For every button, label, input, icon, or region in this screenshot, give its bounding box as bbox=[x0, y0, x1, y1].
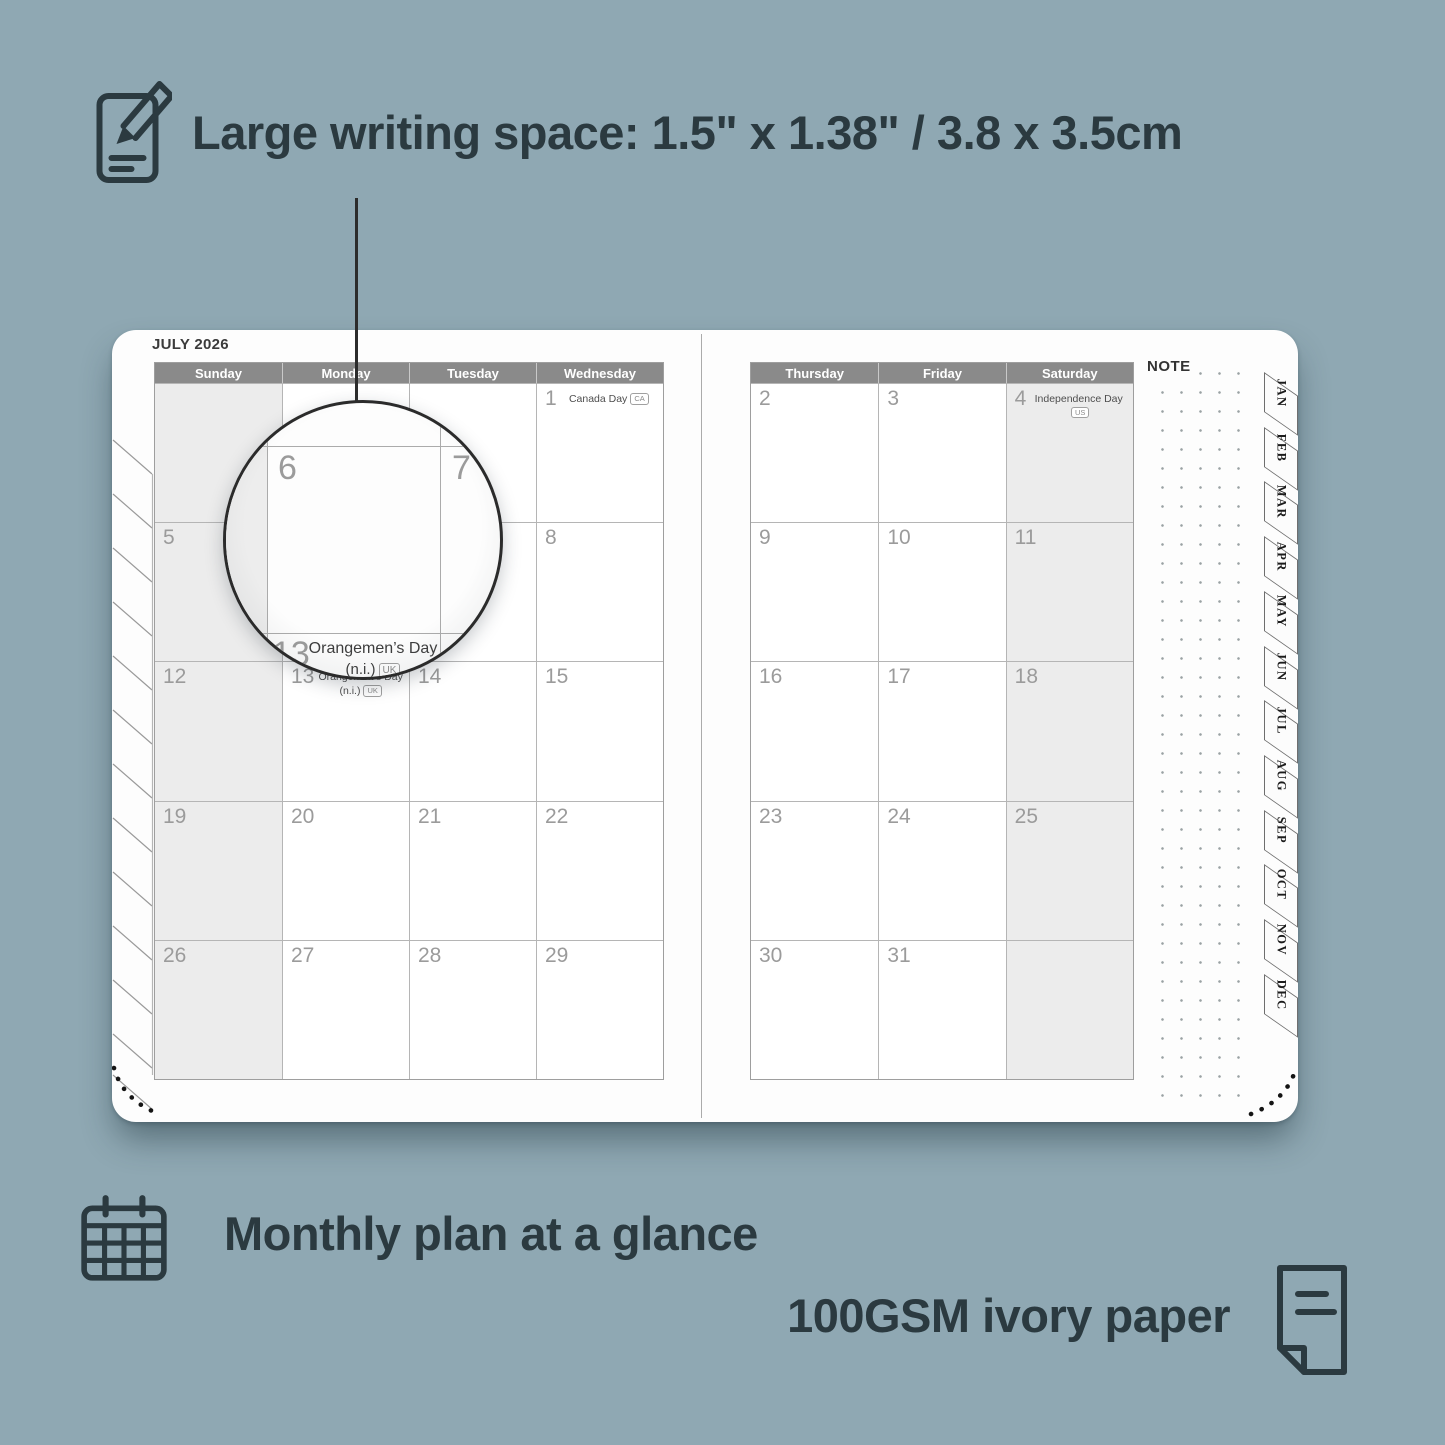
calendar-cell: 16 bbox=[751, 661, 878, 800]
day-number: 26 bbox=[160, 945, 186, 967]
day-number: 31 bbox=[884, 945, 910, 967]
month-tab-oct: OCT bbox=[1264, 864, 1298, 928]
day-header: Saturday bbox=[1006, 363, 1133, 383]
note-label: NOTE bbox=[1147, 358, 1196, 375]
lens-holiday-line1: Orangemen’s Day bbox=[298, 639, 448, 660]
day-number: 8 bbox=[542, 527, 557, 549]
lens-shaded-column bbox=[226, 403, 267, 677]
lens-holiday-label: Orangemen’s Day (n.i.)UK bbox=[298, 639, 448, 679]
day-number: 12 bbox=[160, 666, 186, 688]
calendar-cell: 2 bbox=[751, 383, 878, 522]
day-number: 22 bbox=[542, 806, 568, 828]
calendar-cell: 31 bbox=[878, 940, 1005, 1079]
month-tab-label: FEB bbox=[1265, 428, 1297, 466]
day-header: Friday bbox=[878, 363, 1005, 383]
month-title: JULY 2026 bbox=[152, 336, 229, 353]
lens-day-number: 6 bbox=[278, 449, 297, 488]
month-tab-label: NOV bbox=[1265, 921, 1297, 959]
calendar-icon bbox=[78, 1192, 170, 1284]
lens-grid-line bbox=[226, 633, 500, 634]
month-tabs: JANFEBMARAPRMAYJUNJULAUGSEPOCTNOVDEC bbox=[1264, 330, 1298, 1122]
page-spine bbox=[701, 334, 702, 1118]
month-tab-jun: JUN bbox=[1264, 646, 1298, 710]
calendar-cell: 13Orangemen’s Day(n.i.)UK bbox=[282, 661, 409, 800]
month-tab-label: MAY bbox=[1265, 592, 1297, 630]
holiday-badge: UK bbox=[363, 685, 381, 697]
day-number: 30 bbox=[756, 945, 782, 967]
calendar-cell: 20 bbox=[282, 801, 409, 940]
day-number: 9 bbox=[756, 527, 771, 549]
month-tab-label: AUG bbox=[1265, 757, 1297, 795]
month-tab-label: JUN bbox=[1265, 647, 1297, 685]
day-header: Tuesday bbox=[409, 363, 536, 383]
day-number: 16 bbox=[756, 666, 782, 688]
month-tab-label: SEP bbox=[1265, 811, 1297, 849]
calendar-cell: 29 bbox=[536, 940, 663, 1079]
calendar-cell: 24 bbox=[878, 801, 1005, 940]
note-pencil-icon bbox=[84, 76, 172, 184]
calendar-cell: 14 bbox=[409, 661, 536, 800]
day-number: 2 bbox=[756, 388, 771, 410]
holiday-label: Canada DayCA bbox=[560, 393, 658, 407]
calendar-cell: 19 bbox=[155, 801, 282, 940]
month-tab-may: MAY bbox=[1264, 591, 1298, 655]
calendar-cell: 23 bbox=[751, 801, 878, 940]
month-tab-jul: JUL bbox=[1264, 700, 1298, 764]
month-tab-apr: APR bbox=[1264, 536, 1298, 600]
holiday-label: Independence DayUS bbox=[1029, 393, 1128, 420]
lens-grid-line bbox=[226, 446, 500, 447]
calendar-cell: 27 bbox=[282, 940, 409, 1079]
day-number: 4 bbox=[1012, 388, 1027, 410]
month-tab-jan: JAN bbox=[1264, 372, 1298, 436]
calendar-cell: 11 bbox=[1006, 522, 1133, 661]
day-header: Wednesday bbox=[536, 363, 663, 383]
day-number: 20 bbox=[288, 806, 314, 828]
holiday-badge: CA bbox=[630, 393, 648, 405]
calendar-cell: 15 bbox=[536, 661, 663, 800]
day-number: 10 bbox=[884, 527, 910, 549]
month-tab-nov: NOV bbox=[1264, 919, 1298, 983]
month-tab-label: APR bbox=[1265, 538, 1297, 576]
right-page-calendar: ThursdayFridaySaturday234Independence Da… bbox=[750, 362, 1134, 1080]
day-number: 17 bbox=[884, 666, 910, 688]
calendar-cell: 9 bbox=[751, 522, 878, 661]
lens-grid-line bbox=[440, 403, 441, 677]
calendar-cell: 12 bbox=[155, 661, 282, 800]
day-number: 23 bbox=[756, 806, 782, 828]
month-tab-label: JAN bbox=[1265, 374, 1297, 412]
calendar-cell: 3 bbox=[878, 383, 1005, 522]
calendar-cell: 28 bbox=[409, 940, 536, 1079]
month-tab-label: OCT bbox=[1265, 866, 1297, 904]
note-dot-grid bbox=[1145, 356, 1249, 1104]
day-number: 25 bbox=[1012, 806, 1038, 828]
day-number: 3 bbox=[884, 388, 899, 410]
month-tab-aug: AUG bbox=[1264, 755, 1298, 819]
calendar-cell: 18 bbox=[1006, 661, 1133, 800]
lens-grid-line bbox=[267, 403, 268, 677]
month-tab-label: DEC bbox=[1265, 975, 1297, 1013]
day-header: Monday bbox=[282, 363, 409, 383]
calendar-cell: 25 bbox=[1006, 801, 1133, 940]
edge-hatch-lines bbox=[113, 440, 153, 1110]
calendar-cell: 8 bbox=[536, 522, 663, 661]
day-number: 1 bbox=[542, 388, 557, 410]
calendar-cell: 22 bbox=[536, 801, 663, 940]
day-number: 18 bbox=[1012, 666, 1038, 688]
monthly-plan-heading: Monthly plan at a glance bbox=[224, 1206, 758, 1261]
lens-day-number: 7 bbox=[452, 449, 471, 488]
month-tab-dec: DEC bbox=[1264, 974, 1298, 1038]
calendar-cell bbox=[1006, 940, 1133, 1079]
day-number: 24 bbox=[884, 806, 910, 828]
month-tab-label: JUL bbox=[1265, 702, 1297, 740]
day-header: Thursday bbox=[751, 363, 878, 383]
day-number: 19 bbox=[160, 806, 186, 828]
paper-heading: 100GSM ivory paper bbox=[787, 1288, 1230, 1343]
calendar-cell: 1Canada DayCA bbox=[536, 383, 663, 522]
calendar-cell: 4Independence DayUS bbox=[1006, 383, 1133, 522]
calendar-cell: 30 bbox=[751, 940, 878, 1079]
month-tab-feb: FEB bbox=[1264, 427, 1298, 491]
day-number: 27 bbox=[288, 945, 314, 967]
calendar-cell: 21 bbox=[409, 801, 536, 940]
calendar-cell: 17 bbox=[878, 661, 1005, 800]
writing-space-heading: Large writing space: 1.5" x 1.38" / 3.8 … bbox=[192, 105, 1182, 160]
calendar-cell: 26 bbox=[155, 940, 282, 1079]
month-tab-label: MAR bbox=[1265, 483, 1297, 521]
day-number: 5 bbox=[160, 527, 175, 549]
lens-holiday-badge: UK bbox=[379, 663, 401, 678]
holiday-badge: US bbox=[1071, 407, 1089, 419]
day-number: 15 bbox=[542, 666, 568, 688]
connector-line bbox=[355, 198, 358, 403]
calendar-cell: 10 bbox=[878, 522, 1005, 661]
day-number: 29 bbox=[542, 945, 568, 967]
lens-holiday-line2: (n.i.)UK bbox=[298, 660, 448, 680]
day-number: 11 bbox=[1012, 527, 1037, 549]
day-number: 21 bbox=[415, 806, 441, 828]
day-header: Sunday bbox=[155, 363, 282, 383]
magnifier-lens: 6 7 13 Orangemen’s Day (n.i.)UK bbox=[223, 400, 503, 680]
month-tab-sep: SEP bbox=[1264, 810, 1298, 874]
month-tab-mar: MAR bbox=[1264, 481, 1298, 545]
paper-icon bbox=[1270, 1262, 1354, 1378]
day-number: 28 bbox=[415, 945, 441, 967]
